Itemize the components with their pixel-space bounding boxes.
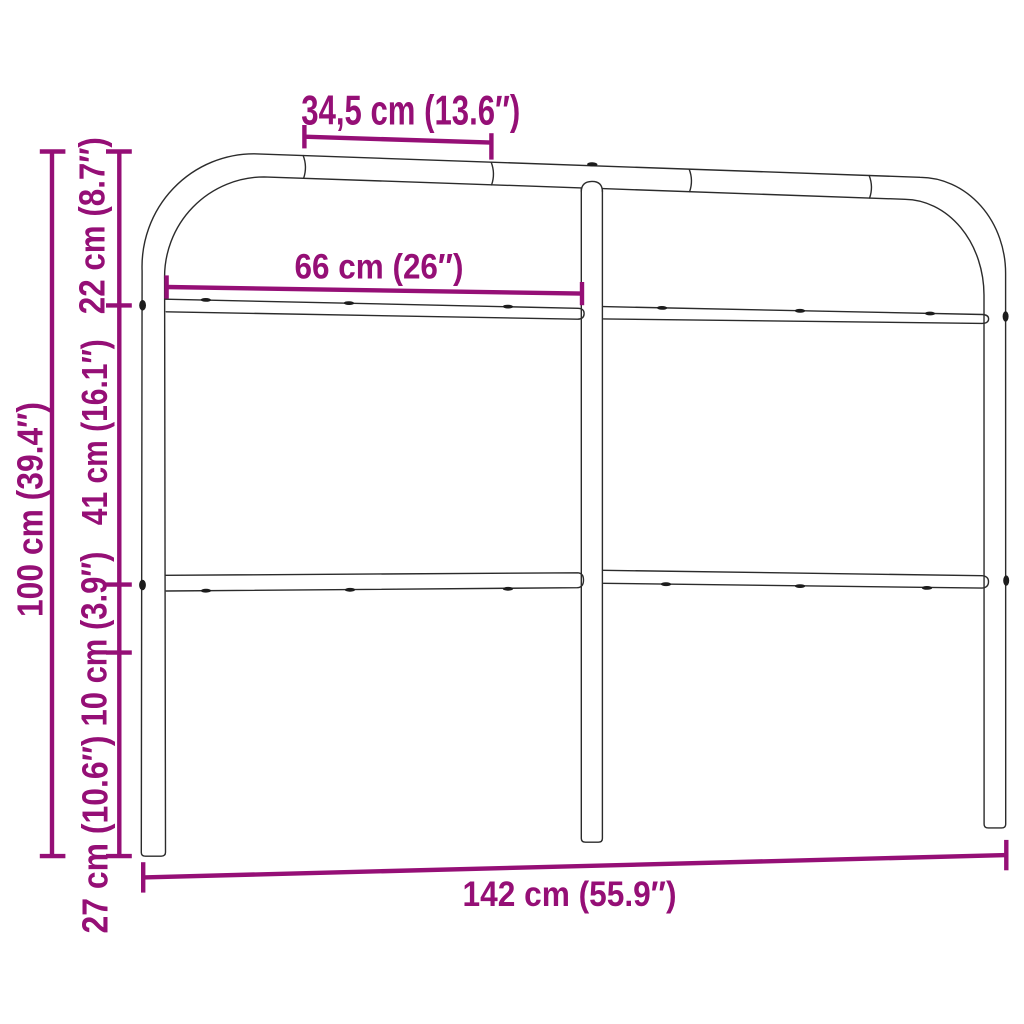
svg-text:41 cm (16.1″): 41 cm (16.1″) [74,339,115,525]
svg-text:22 cm (8.7″): 22 cm (8.7″) [72,137,113,314]
svg-text:66 cm (26″): 66 cm (26″) [295,247,464,287]
svg-text:100 cm (39.4″): 100 cm (39.4″) [10,402,51,617]
svg-text:34,5 cm (13.6″): 34,5 cm (13.6″) [301,87,520,134]
svg-text:27 cm (10.6″): 27 cm (10.6″) [75,736,116,934]
svg-text:142 cm (55.9″): 142 cm (55.9″) [463,874,677,914]
svg-text:10 cm (3.9″): 10 cm (3.9″) [74,552,115,727]
